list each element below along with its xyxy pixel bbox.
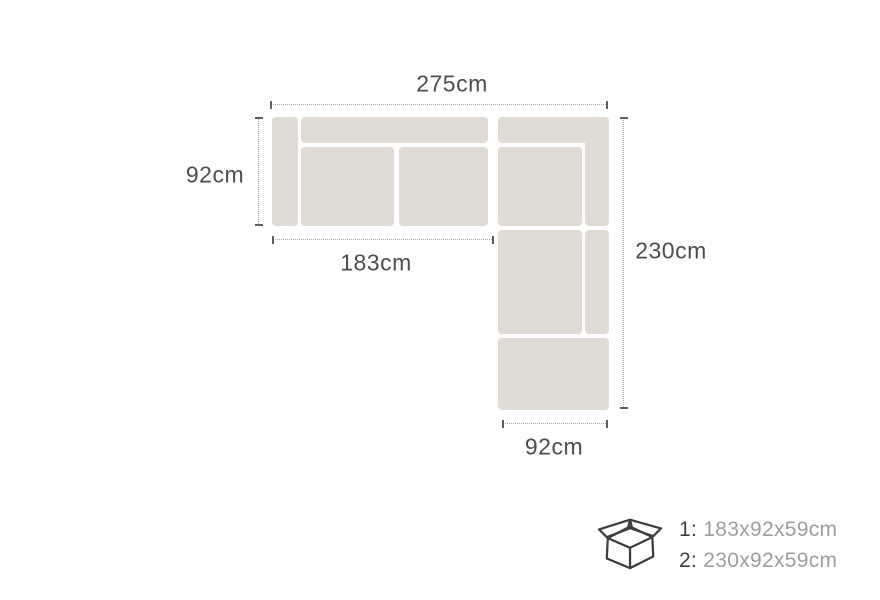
dimension-line-left-depth [258, 117, 259, 226]
left-backrest [301, 117, 488, 143]
corner-seat [498, 147, 582, 226]
corner-backrest-top [498, 117, 609, 143]
dimension-line-chaise-length [272, 239, 494, 240]
dimension-line-top-width [270, 104, 608, 105]
package-size-list: 1: 183x92x59cm 2: 230x92x59cm [679, 514, 837, 576]
dimension-line-right-length [623, 117, 624, 409]
package-2-index: 2: [679, 549, 697, 572]
bottom-armrest [498, 338, 609, 410]
package-2-line: 2: 230x92x59cm [679, 545, 837, 576]
seat-cushion-1 [301, 147, 394, 226]
dimension-label-chaise-length: 183cm [340, 250, 412, 277]
package-1-size: 183x92x59cm [703, 518, 837, 541]
package-1-line: 1: 183x92x59cm [679, 514, 837, 545]
packaging-info: 1: 183x92x59cm 2: 230x92x59cm [597, 512, 837, 577]
package-1-index: 1: [679, 518, 697, 541]
dimension-label-top-width: 275cm [416, 71, 488, 98]
sofa-dimension-diagram: 275cm 92cm 183cm 230cm 92cm 1: 183x92x59… [0, 0, 880, 600]
right-backrest-strip [585, 230, 609, 334]
dimension-label-left-depth: 92cm [186, 162, 244, 189]
left-armrest [272, 117, 298, 226]
dimension-label-right-length: 230cm [635, 238, 707, 265]
open-box-icon [597, 512, 665, 577]
dimension-label-bottom-width: 92cm [525, 434, 583, 461]
package-2-size: 230x92x59cm [703, 549, 837, 572]
dimension-line-bottom-width [502, 423, 608, 424]
right-seat-cushion [498, 230, 582, 334]
seat-cushion-2 [399, 147, 488, 226]
